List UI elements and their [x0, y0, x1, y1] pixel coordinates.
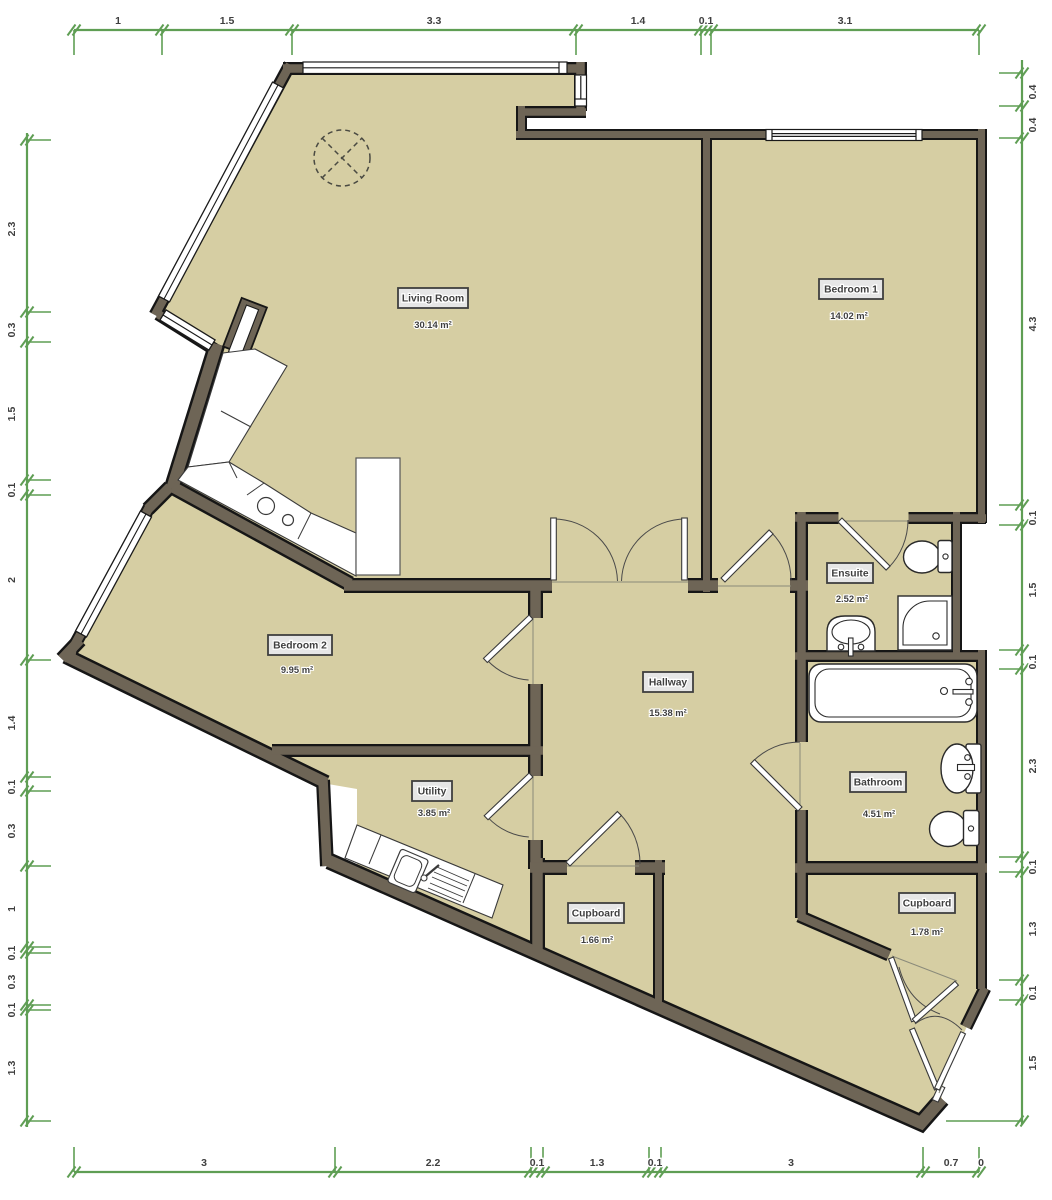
- svg-text:0.1: 0.1: [1027, 986, 1039, 1001]
- svg-text:30.14 m²: 30.14 m²: [414, 319, 452, 330]
- svg-text:14.02 m²: 14.02 m²: [830, 310, 868, 321]
- svg-text:3.85 m²: 3.85 m²: [418, 807, 450, 818]
- svg-text:Living Room: Living Room: [402, 294, 464, 305]
- svg-text:0: 0: [978, 1157, 984, 1169]
- svg-text:2.3: 2.3: [6, 222, 18, 237]
- svg-text:0.1: 0.1: [1027, 860, 1039, 875]
- svg-text:15.38 m²: 15.38 m²: [649, 707, 687, 718]
- svg-text:1: 1: [115, 15, 121, 27]
- svg-text:0.1: 0.1: [530, 1157, 545, 1169]
- svg-text:0.1: 0.1: [6, 1003, 18, 1018]
- svg-text:0.1: 0.1: [1027, 511, 1039, 526]
- svg-text:1.5: 1.5: [1027, 1056, 1039, 1071]
- svg-text:1.3: 1.3: [6, 1061, 18, 1076]
- svg-text:1.3: 1.3: [590, 1157, 605, 1169]
- svg-text:0.1: 0.1: [648, 1157, 663, 1169]
- svg-text:Ensuite: Ensuite: [831, 569, 868, 580]
- svg-text:Cupboard: Cupboard: [903, 899, 952, 910]
- svg-text:3: 3: [201, 1157, 207, 1169]
- svg-text:0.3: 0.3: [6, 824, 18, 839]
- svg-text:0.1: 0.1: [6, 483, 18, 498]
- svg-text:0.1: 0.1: [6, 946, 18, 961]
- svg-text:Bedroom 1: Bedroom 1: [824, 285, 878, 296]
- svg-text:2.2: 2.2: [426, 1157, 441, 1169]
- svg-text:1.78 m²: 1.78 m²: [911, 926, 943, 937]
- svg-text:0.3: 0.3: [6, 323, 18, 338]
- svg-text:4.3: 4.3: [1027, 317, 1039, 332]
- svg-text:3.1: 3.1: [838, 15, 853, 27]
- svg-text:0.4: 0.4: [1027, 85, 1039, 100]
- svg-text:3: 3: [788, 1157, 794, 1169]
- svg-text:2.52 m²: 2.52 m²: [836, 593, 868, 604]
- svg-text:1.4: 1.4: [631, 15, 646, 27]
- svg-text:1.5: 1.5: [1027, 583, 1039, 598]
- svg-text:1.4: 1.4: [6, 716, 18, 731]
- svg-text:3.3: 3.3: [427, 15, 442, 27]
- svg-text:4.51 m²: 4.51 m²: [863, 808, 895, 819]
- svg-text:1: 1: [6, 906, 18, 912]
- svg-text:1.66 m²: 1.66 m²: [581, 934, 613, 945]
- svg-text:Bathroom: Bathroom: [854, 778, 903, 789]
- svg-text:0.7: 0.7: [944, 1157, 959, 1169]
- svg-text:Utility: Utility: [418, 787, 447, 798]
- svg-text:1.5: 1.5: [220, 15, 235, 27]
- svg-text:9.95 m²: 9.95 m²: [281, 664, 313, 675]
- svg-text:0.4: 0.4: [1027, 118, 1039, 133]
- svg-text:0.1: 0.1: [6, 780, 18, 795]
- svg-text:Bedroom 2: Bedroom 2: [273, 641, 327, 652]
- svg-text:1.5: 1.5: [6, 407, 18, 422]
- svg-text:0.1: 0.1: [699, 15, 714, 27]
- svg-text:2.3: 2.3: [1027, 759, 1039, 774]
- svg-text:2: 2: [6, 577, 18, 583]
- svg-text:Hallway: Hallway: [649, 678, 688, 689]
- svg-text:1.3: 1.3: [1027, 922, 1039, 937]
- svg-text:0.3: 0.3: [6, 975, 18, 990]
- svg-text:Cupboard: Cupboard: [572, 909, 621, 920]
- svg-text:0.1: 0.1: [1027, 655, 1039, 670]
